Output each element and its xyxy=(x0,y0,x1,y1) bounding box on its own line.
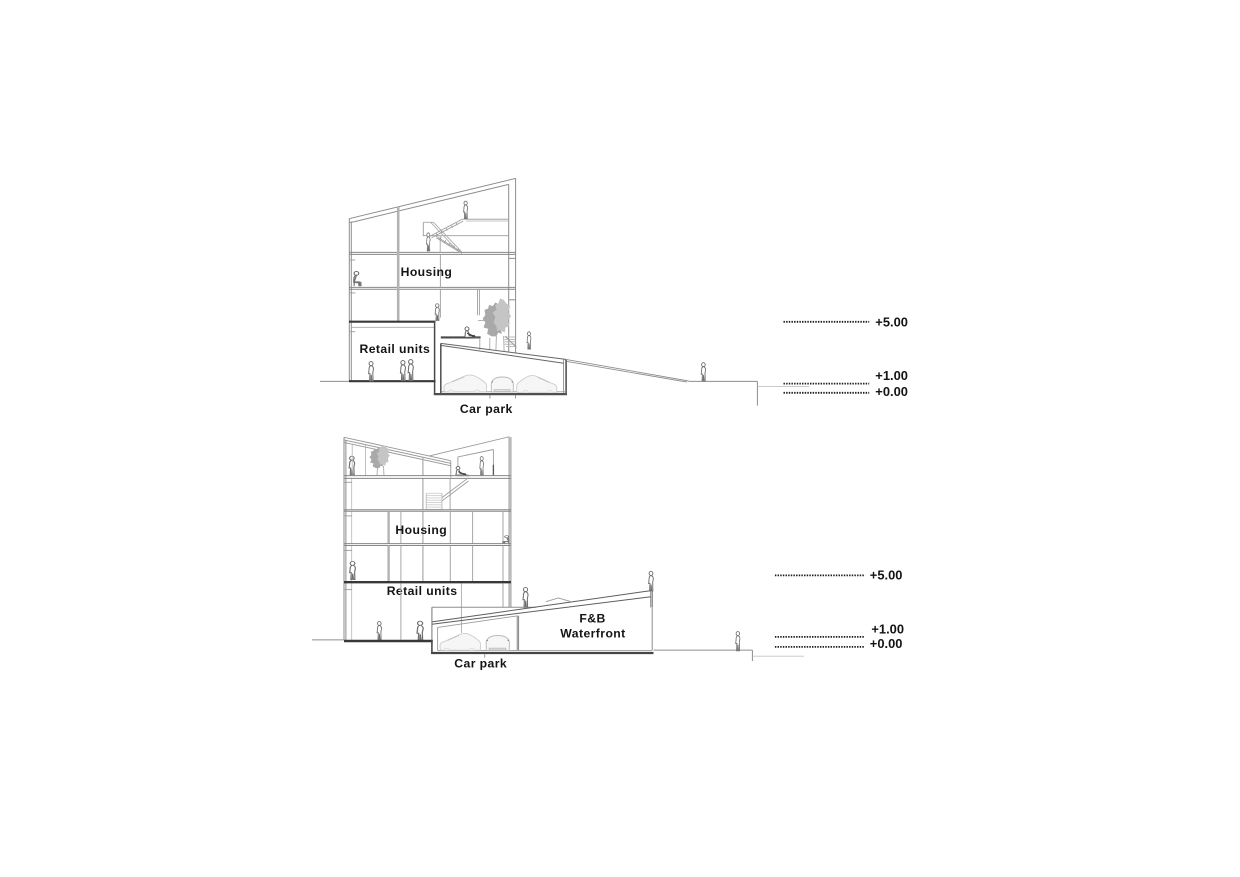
svg-text:+1.00: +1.00 xyxy=(875,368,908,383)
svg-text:+5.00: +5.00 xyxy=(870,568,903,583)
svg-text:Retail units: Retail units xyxy=(387,584,458,598)
svg-text:Housing: Housing xyxy=(395,523,447,537)
svg-text:Waterfront: Waterfront xyxy=(560,627,625,641)
svg-text:+5.00: +5.00 xyxy=(875,315,908,330)
svg-text:Housing: Housing xyxy=(401,265,453,279)
svg-text:F&B: F&B xyxy=(579,611,605,625)
svg-text:Retail units: Retail units xyxy=(360,342,431,356)
svg-text:Car park: Car park xyxy=(460,402,513,416)
svg-text:Car park: Car park xyxy=(454,656,507,670)
svg-text:+1.00: +1.00 xyxy=(871,622,904,637)
svg-text:+0.00: +0.00 xyxy=(875,384,908,399)
svg-text:+0.00: +0.00 xyxy=(870,636,903,651)
